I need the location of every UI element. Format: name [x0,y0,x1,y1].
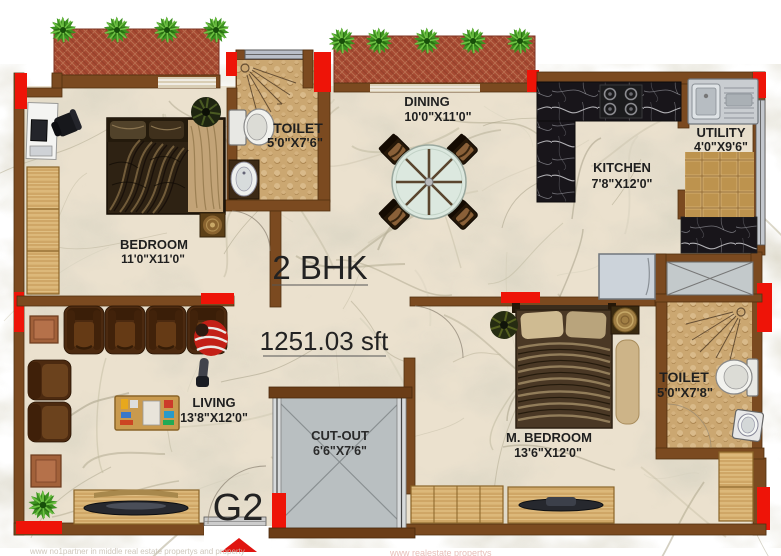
svg-text:TOILET: TOILET [273,120,323,136]
svg-text:7'8"X12'0": 7'8"X12'0" [592,177,653,191]
svg-text:M. BEDROOM: M. BEDROOM [506,430,592,445]
svg-text:BEDROOM: BEDROOM [120,237,188,252]
svg-text:www realestate propertys: www realestate propertys [389,548,492,556]
svg-text:LIVING: LIVING [192,395,235,410]
svg-text:2 BHK: 2 BHK [272,249,367,286]
svg-text:G2: G2 [213,487,264,529]
svg-text:6'6"X7'6": 6'6"X7'6" [313,444,367,458]
svg-text:5'0"X7'6": 5'0"X7'6" [267,135,323,150]
svg-text:KITCHEN: KITCHEN [593,160,651,175]
svg-text:UTILITY: UTILITY [696,125,745,140]
svg-text:www no1partner in middle real: www no1partner in middle real estate pro… [29,547,245,556]
svg-text:4'0"X9'6": 4'0"X9'6" [694,140,748,154]
svg-text:5'0"X7'8": 5'0"X7'8" [657,385,713,400]
svg-text:13'6"X12'0": 13'6"X12'0" [514,446,582,460]
svg-text:13'8"X12'0": 13'8"X12'0" [180,411,248,425]
svg-text:10'0"X11'0": 10'0"X11'0" [404,110,471,124]
svg-text:CUT-OUT: CUT-OUT [311,428,369,443]
svg-text:11'0"X11'0": 11'0"X11'0" [121,252,185,266]
svg-text:1251.03 sft: 1251.03 sft [260,326,389,356]
svg-text:TOILET: TOILET [659,369,709,385]
svg-text:DINING: DINING [404,94,450,109]
